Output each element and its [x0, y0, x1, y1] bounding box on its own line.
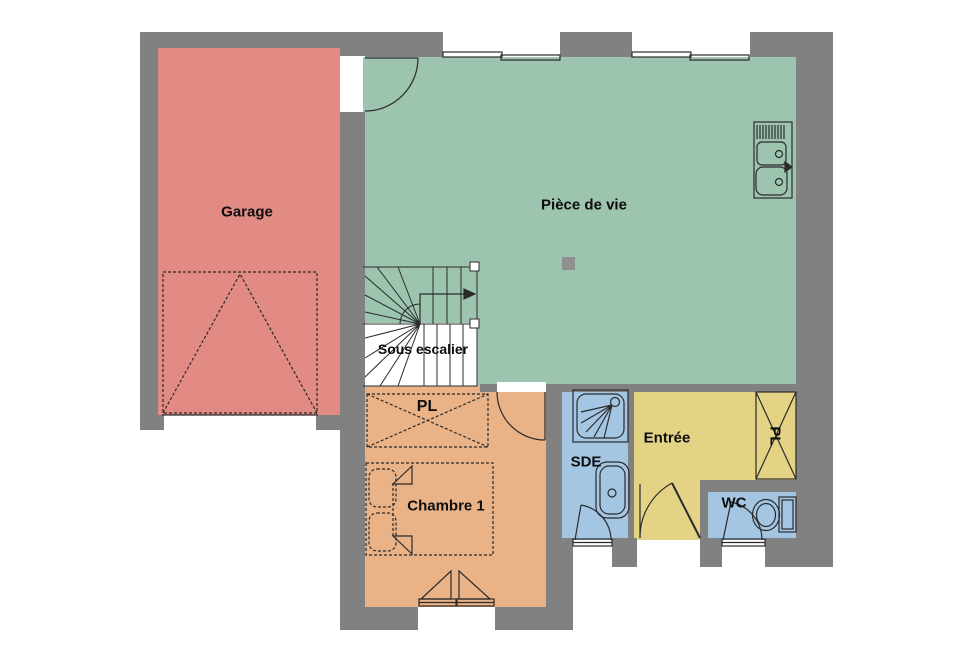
wall-garage-living-top [340, 48, 365, 56]
room-label-entry-closet: PL [767, 426, 784, 445]
window-icon-shower-room [573, 539, 612, 546]
wall-shower-entry [628, 392, 634, 540]
floor-plan: Garage Pièce de vie Sous escalier PL Cha… [0, 0, 960, 665]
wall-top-living-1 [365, 32, 443, 57]
room-label-under-stairs: Sous escalier [378, 341, 468, 357]
room-bedroom-floor [365, 386, 546, 607]
room-label-bedroom-closet: PL [417, 398, 437, 416]
wall-right [796, 57, 833, 567]
wall-bottom-2 [612, 538, 637, 567]
wall-wc-west [700, 492, 708, 540]
structural-post [562, 257, 575, 270]
room-label-bedroom: Chambre 1 [407, 498, 485, 515]
wall-garage-door-stub-right [316, 415, 340, 430]
room-label-entry: Entrée [644, 430, 691, 447]
wall-top-garage [140, 32, 365, 48]
bedroom-door-opening [497, 382, 546, 392]
room-label-shower-room: SDE [571, 454, 602, 471]
window-icon-wc [722, 539, 765, 546]
wall-garage-living [340, 112, 365, 630]
wall-living-south [546, 384, 796, 392]
room-label-garage: Garage [221, 204, 273, 221]
wall-bottom-4 [765, 538, 796, 567]
wall-bottom-3 [700, 538, 722, 567]
room-label-living: Pièce de vie [541, 197, 627, 214]
wall-left [140, 48, 158, 430]
wall-bottom-1 [560, 538, 573, 567]
wall-bedroom-south-2 [495, 607, 546, 630]
wall-living-south-stub [480, 384, 497, 392]
wall-bedroom-south-1 [340, 607, 418, 630]
room-wc-floor [706, 490, 796, 540]
wall-top-living-2 [560, 32, 632, 57]
room-garage-floor [158, 47, 340, 415]
wall-wc-north [700, 480, 796, 492]
room-label-wc: WC [722, 495, 747, 512]
wall-garage-door-stub-left [158, 415, 164, 430]
wall-top-living-3 [750, 32, 833, 57]
